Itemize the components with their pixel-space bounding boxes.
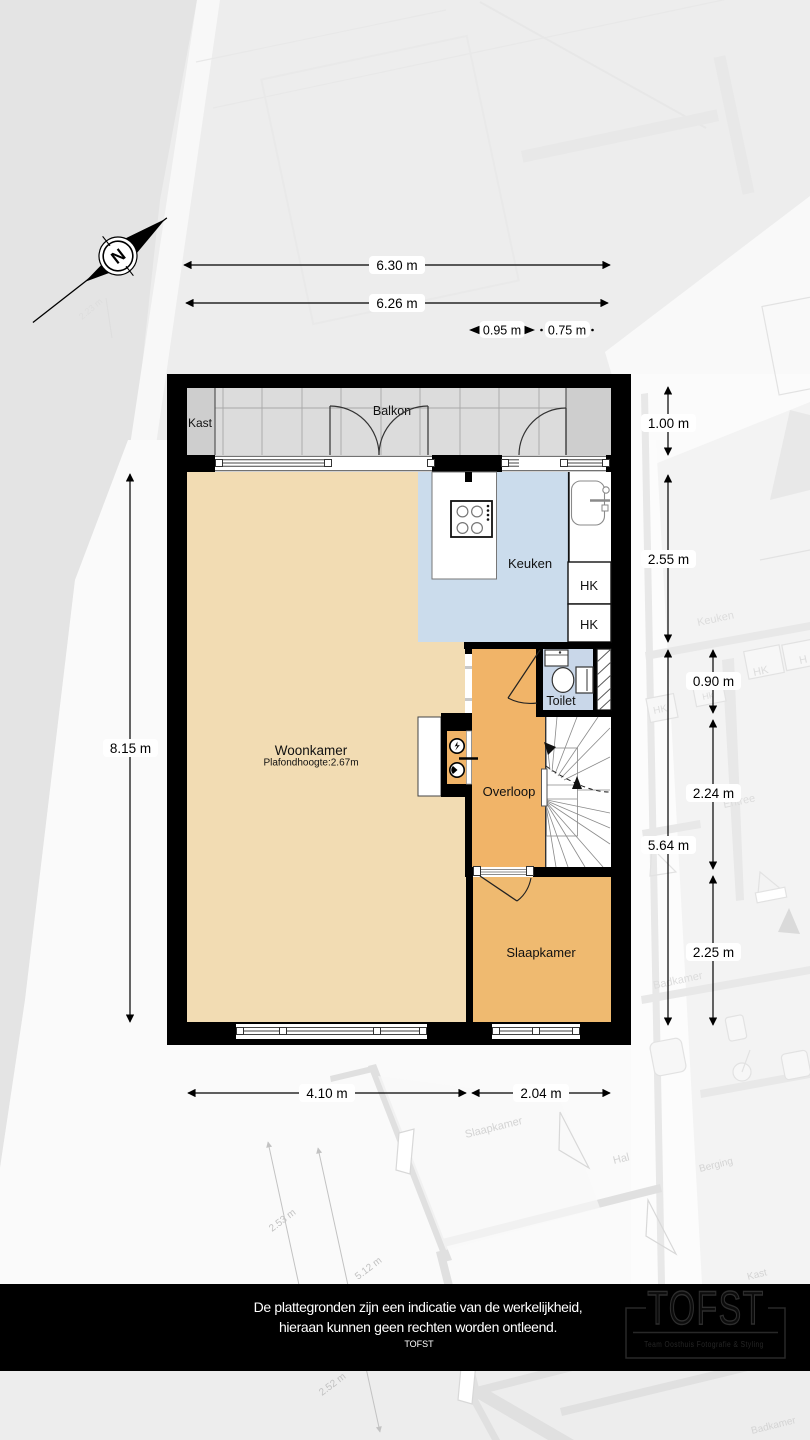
- svg-text:Team Oosthuis Fotografie & Sty: Team Oosthuis Fotografie & Styling: [644, 1339, 764, 1349]
- svg-text:4.10 m: 4.10 m: [306, 1086, 347, 1101]
- svg-text:2.55 m: 2.55 m: [648, 552, 689, 567]
- svg-text:2.24 m: 2.24 m: [693, 786, 734, 801]
- svg-text:Slaapkamer: Slaapkamer: [506, 945, 576, 960]
- svg-text:1.00 m: 1.00 m: [648, 416, 689, 431]
- svg-text:6.26 m: 6.26 m: [376, 296, 417, 311]
- svg-text:Toilet: Toilet: [546, 694, 576, 708]
- svg-text:Woonkamer: Woonkamer: [275, 743, 348, 758]
- svg-text:De plattegronden zijn een indi: De plattegronden zijn een indicatie van …: [254, 1299, 583, 1315]
- svg-text:2.04 m: 2.04 m: [520, 1086, 561, 1101]
- svg-text:6.30 m: 6.30 m: [376, 258, 417, 273]
- svg-text:5.64 m: 5.64 m: [648, 838, 689, 853]
- svg-text:hieraan kunnen geen rechten wo: hieraan kunnen geen rechten worden ontle…: [279, 1319, 557, 1335]
- svg-text:0.75 m: 0.75 m: [548, 324, 586, 338]
- svg-text:0.95 m: 0.95 m: [483, 324, 521, 338]
- svg-text:Plafondhoogte:2.67m: Plafondhoogte:2.67m: [263, 758, 358, 769]
- svg-text:2.25 m: 2.25 m: [693, 945, 734, 960]
- svg-text:Kast: Kast: [188, 416, 213, 430]
- svg-text:8.15 m: 8.15 m: [110, 741, 151, 756]
- svg-text:HK: HK: [580, 578, 598, 593]
- svg-text:TOFST: TOFST: [647, 1282, 764, 1335]
- svg-text:HK: HK: [580, 617, 598, 632]
- svg-text:Overloop: Overloop: [483, 784, 536, 799]
- svg-text:TOFST: TOFST: [404, 1339, 434, 1349]
- svg-text:Keuken: Keuken: [508, 556, 552, 571]
- svg-text:0.90 m: 0.90 m: [693, 674, 734, 689]
